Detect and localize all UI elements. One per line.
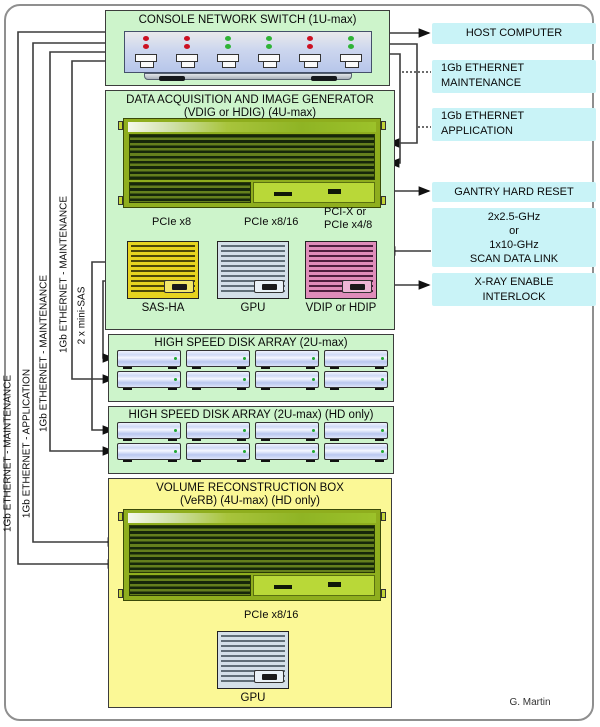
red-led-icon	[307, 44, 313, 49]
vdip-card	[305, 241, 377, 299]
switch-port	[217, 36, 239, 62]
ethernet-jack-icon	[217, 54, 239, 62]
chassis-vents	[129, 134, 375, 180]
disk-drive-unit	[324, 371, 388, 388]
disk-drive-unit	[324, 422, 388, 439]
ethernet-jack-icon	[176, 54, 198, 62]
green-led-icon	[225, 44, 231, 49]
vdip-label: VDIP or HDIP	[293, 302, 389, 314]
ethernet-jack-icon	[340, 54, 362, 62]
switch-port	[135, 36, 157, 62]
switch-port	[258, 36, 280, 62]
vlabel-eth-application: 1Gb ETHERNET - APPLICATION	[22, 344, 33, 544]
pcie-x8-label: PCIe x8	[152, 216, 191, 229]
disk-array-1-panel: HIGH SPEED DISK ARRAY (2U-max)	[108, 334, 394, 402]
network-switch-device	[124, 31, 372, 73]
gantry-reset-label: GANTRY HARD RESET	[432, 182, 596, 202]
verb-server-chassis	[123, 509, 381, 601]
red-led-icon	[307, 36, 313, 41]
disk-array-1-title: HIGH SPEED DISK ARRAY (2U-max)	[109, 337, 393, 350]
eth-application-label: 1Gb ETHERNET APPLICATION	[432, 108, 596, 141]
red-led-icon	[184, 36, 190, 41]
green-led-icon	[348, 44, 354, 49]
pcix-label: PCI-X or PCIe x4/8	[324, 206, 372, 232]
red-led-icon	[184, 44, 190, 49]
disk-drive-unit	[324, 443, 388, 460]
daq-panel: DATA ACQUISITION AND IMAGE GENERATOR (VD…	[105, 90, 395, 330]
disk-drive-unit	[117, 422, 181, 439]
host-computer-label: HOST COMPUTER	[432, 23, 596, 44]
disk-array-1-grid	[117, 350, 388, 388]
gpu-card	[217, 241, 289, 299]
disk-array-2-grid	[117, 422, 388, 460]
gpu-label: GPU	[205, 302, 301, 314]
verb-pcie-label: PCIe x8/16	[244, 609, 298, 622]
console-switch-panel: CONSOLE NETWORK SWITCH (1U-max)	[105, 10, 390, 86]
disk-drive-unit	[186, 422, 250, 439]
chassis-vents	[129, 525, 375, 573]
daq-title: DATA ACQUISITION AND IMAGE GENERATOR (VD…	[106, 94, 394, 120]
switch-port	[299, 36, 321, 62]
ethernet-jack-icon	[299, 54, 321, 62]
daq-server-chassis	[123, 118, 381, 208]
sas-ha-card	[127, 241, 199, 299]
vlabel-minisas: 2 x mini-SAS	[77, 266, 88, 366]
vlabel-eth-maintenance-1: 1Gb ETHERNET - MAINTENANCE	[3, 354, 14, 554]
vlabel-eth-maintenance-2: 1Gb ETHERNET - MAINTENANCE	[39, 254, 50, 454]
switch-base	[144, 73, 352, 80]
diagram-canvas: CONSOLE NETWORK SWITCH (1U-max) HOST COM…	[0, 0, 600, 727]
green-led-icon	[266, 44, 272, 49]
green-led-icon	[266, 36, 272, 41]
disk-drive-unit	[186, 350, 250, 367]
disk-array-2-panel: HIGH SPEED DISK ARRAY (2U-max) (HD only)	[108, 406, 394, 474]
switch-port	[176, 36, 198, 62]
pcie-x8-16-label: PCIe x8/16	[244, 216, 298, 229]
eth-maintenance-label: 1Gb ETHERNET MAINTENANCE	[432, 60, 596, 93]
scan-data-link-label: 2x2.5-GHz or 1x10-GHz SCAN DATA LINK	[432, 208, 596, 267]
disk-drive-unit	[255, 350, 319, 367]
disk-array-2-title: HIGH SPEED DISK ARRAY (2U-max) (HD only)	[109, 409, 393, 422]
author-credit: G. Martin	[490, 697, 570, 708]
green-led-icon	[348, 36, 354, 41]
disk-drive-unit	[255, 443, 319, 460]
disk-drive-unit	[324, 350, 388, 367]
sas-ha-label: SAS-HA	[115, 302, 211, 314]
ethernet-jack-icon	[135, 54, 157, 62]
verb-gpu-label: GPU	[205, 692, 301, 704]
green-led-icon	[225, 36, 231, 41]
verb-panel: VOLUME RECONSTRUCTION BOX (VeRB) (4U-max…	[108, 478, 392, 708]
disk-drive-unit	[117, 371, 181, 388]
red-led-icon	[143, 44, 149, 49]
disk-drive-unit	[186, 371, 250, 388]
vlabel-eth-maintenance-3: 1Gb ETHERNET - MAINTENANCE	[59, 175, 70, 375]
disk-drive-unit	[117, 443, 181, 460]
disk-drive-unit	[186, 443, 250, 460]
xray-interlock-label: X-RAY ENABLE INTERLOCK	[432, 273, 596, 306]
ethernet-jack-icon	[258, 54, 280, 62]
verb-title: VOLUME RECONSTRUCTION BOX (VeRB) (4U-max…	[109, 482, 391, 508]
red-led-icon	[143, 36, 149, 41]
disk-drive-unit	[255, 371, 319, 388]
disk-drive-unit	[255, 422, 319, 439]
switch-port	[340, 36, 362, 62]
disk-drive-unit	[117, 350, 181, 367]
console-switch-title: CONSOLE NETWORK SWITCH (1U-max)	[106, 14, 389, 27]
verb-gpu-card	[217, 631, 289, 689]
